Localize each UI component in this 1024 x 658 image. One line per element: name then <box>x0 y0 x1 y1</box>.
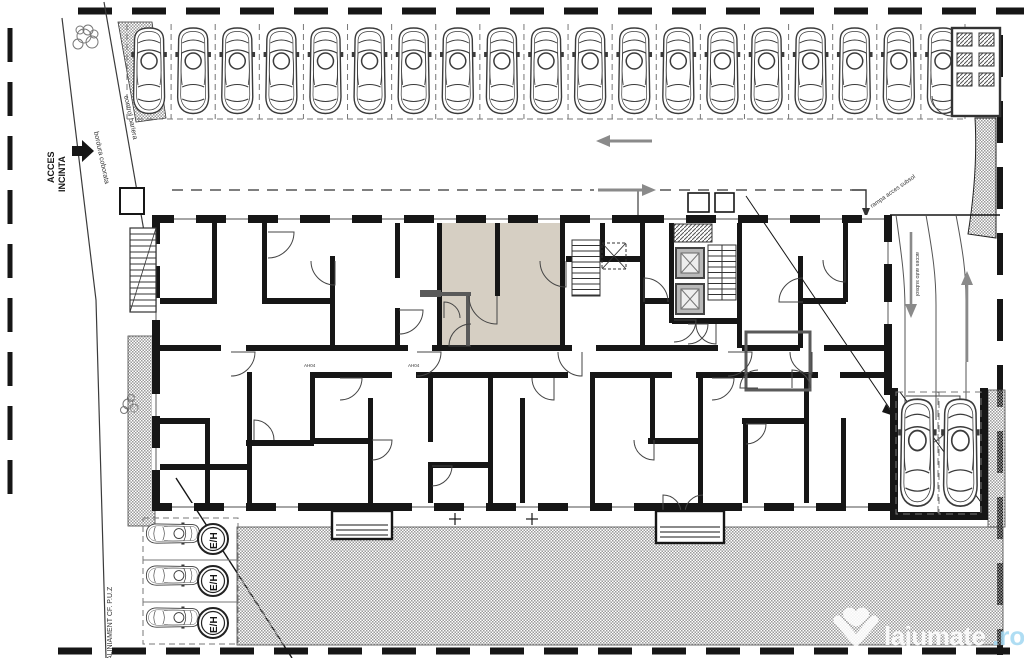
door-arc <box>532 378 554 400</box>
door-arc <box>712 378 734 400</box>
barrier-control-box <box>120 188 144 214</box>
shaft-box <box>715 193 734 212</box>
entrance-porch <box>656 511 724 543</box>
watermark-brand: lajumate <box>884 621 986 651</box>
exterior-stairs <box>130 228 156 312</box>
car-icon <box>837 28 873 114</box>
car-icon <box>484 28 520 114</box>
arrow-left-icon <box>596 135 610 147</box>
street-parking-row <box>127 24 965 119</box>
entrance-porch <box>332 511 392 539</box>
site-plan-drawing: ACCES INCINTA bordura coborata control b… <box>0 0 1024 658</box>
ramp-label-2: acces auto subsol <box>914 252 920 296</box>
highlighted-unit <box>441 223 563 345</box>
car-icon <box>793 28 829 114</box>
ev-charging-label: E/H <box>209 616 220 633</box>
access-label-2: INCINTA <box>57 156 67 192</box>
car-icon <box>749 28 785 114</box>
access-arrow-icon <box>72 140 94 162</box>
car-icon <box>528 28 564 114</box>
door-arc <box>399 310 423 334</box>
garage <box>890 388 988 520</box>
car-icon <box>131 28 167 114</box>
door-tag: AH04 <box>304 363 316 368</box>
car-icon <box>396 28 432 114</box>
door-tag: AH04 <box>408 363 420 368</box>
car-icon <box>146 565 199 587</box>
access-label-1: ACCES <box>46 151 56 183</box>
car-icon <box>572 28 608 114</box>
ev-charging-label: E/H <box>209 532 220 549</box>
car-icon <box>146 607 199 629</box>
ramp-label: rampa acces subsol <box>870 174 917 210</box>
stairs-icon <box>674 224 712 242</box>
car-icon <box>881 28 917 114</box>
ev-parking: E/HE/HE/H <box>143 518 238 644</box>
car-icon <box>308 28 344 114</box>
ev-charging-label: E/H <box>209 574 220 591</box>
car-icon <box>898 399 936 506</box>
car-icon <box>264 28 300 114</box>
car-icon <box>616 28 652 114</box>
door-arc <box>823 260 845 282</box>
level-markers <box>449 513 538 525</box>
car-icon <box>219 28 255 114</box>
curb-label: bordura coborata <box>92 131 110 185</box>
car-icon <box>941 399 979 506</box>
building: AH04 AH04 <box>152 215 960 543</box>
ramp-down-arrow-icon <box>905 304 917 318</box>
car-icon <box>175 28 211 114</box>
ramp-up-arrow-icon <box>961 271 973 285</box>
door-arc <box>746 424 766 444</box>
door-arc <box>340 378 362 400</box>
car-icon <box>705 28 741 114</box>
arrow-right-icon <box>642 184 656 196</box>
shaft-box <box>688 193 709 212</box>
car-icon <box>661 28 697 114</box>
door-arc <box>254 420 274 440</box>
floor-plan-page: ACCES INCINTA bordura coborata control b… <box>0 0 1024 658</box>
watermark-tld: .ro <box>992 621 1024 651</box>
terrace-hatch <box>128 336 1005 645</box>
stairs-icon <box>572 240 600 296</box>
car-icon <box>352 28 388 114</box>
construction-limit <box>172 190 852 212</box>
door-arc <box>372 440 392 460</box>
alignment-label: ALINIAMENT CF. P.U.Z <box>107 586 114 658</box>
door-arc <box>268 232 294 258</box>
tree-icon <box>73 25 98 49</box>
car-icon <box>440 28 476 114</box>
door-arc <box>432 466 452 486</box>
car-icon <box>146 523 199 545</box>
